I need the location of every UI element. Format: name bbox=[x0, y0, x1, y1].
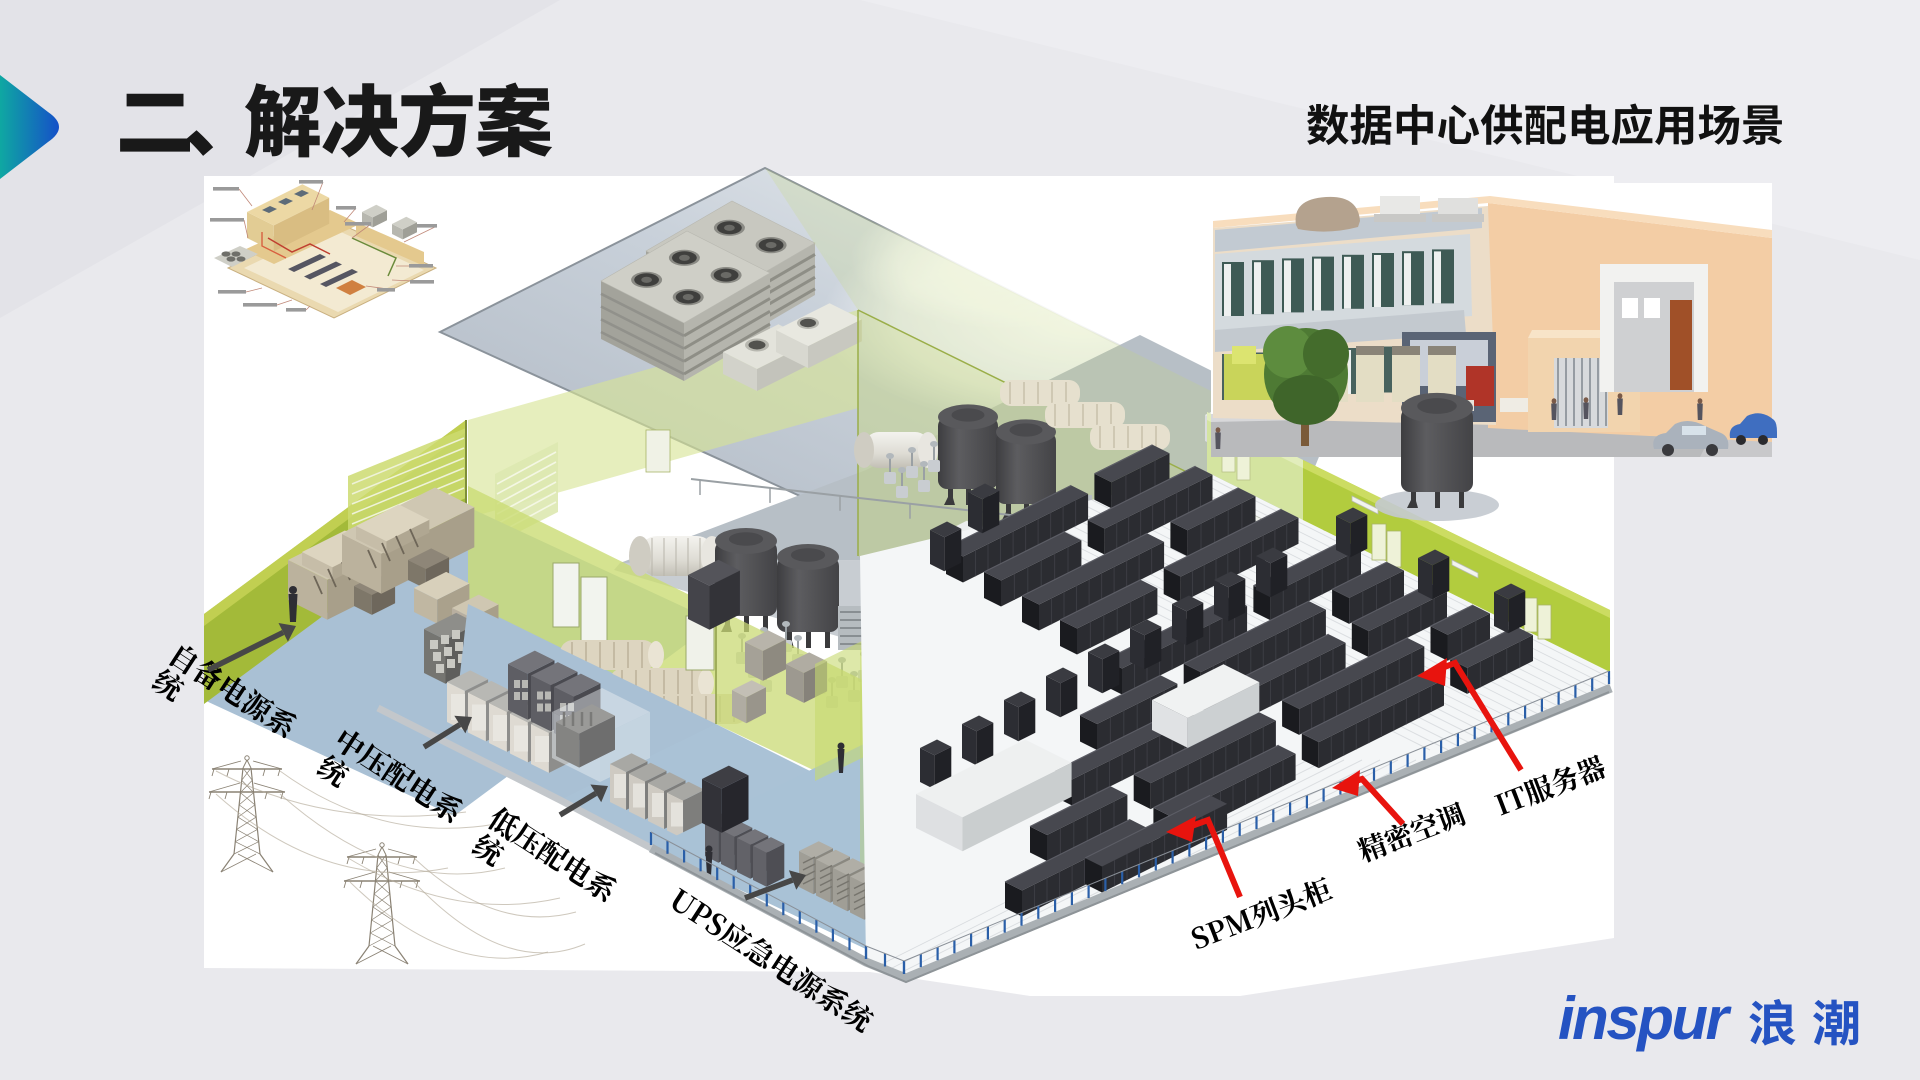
svg-text:inspur: inspur bbox=[1558, 985, 1732, 1052]
